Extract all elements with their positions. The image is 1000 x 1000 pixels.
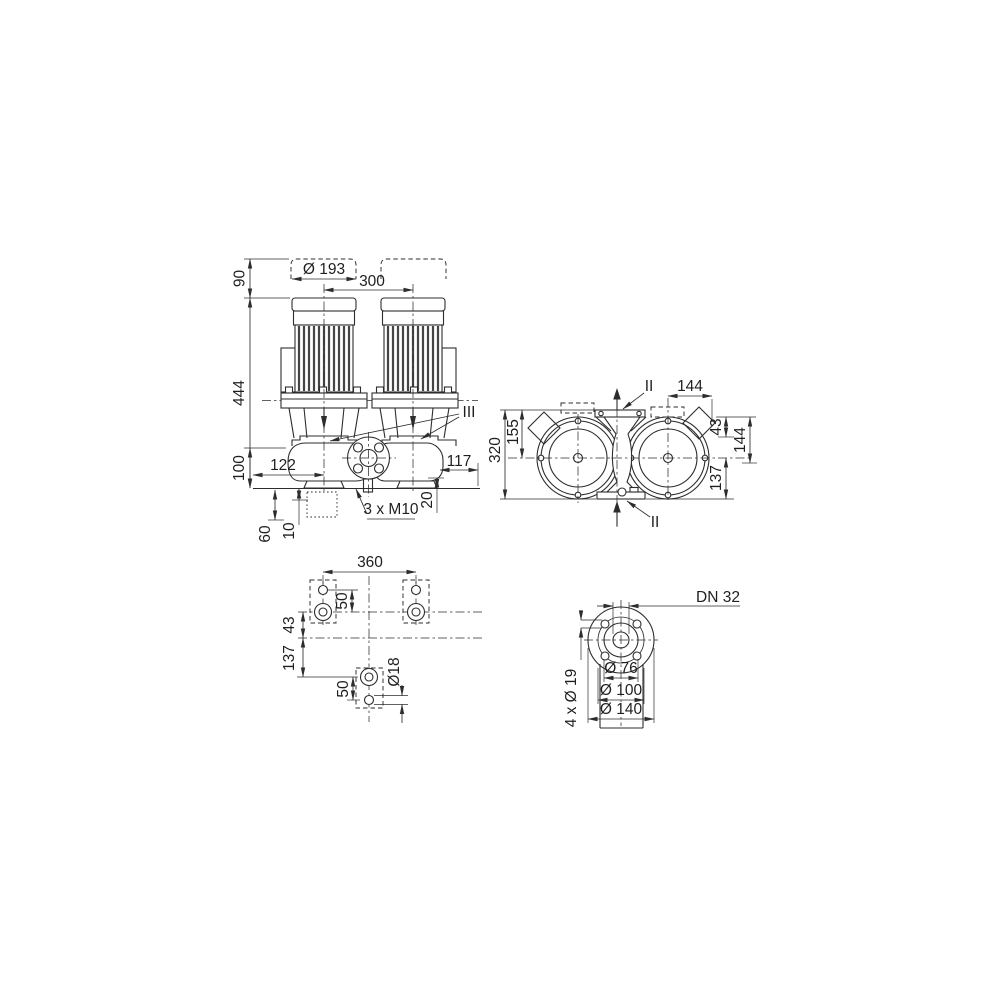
dim-d76: Ø 76 (604, 660, 638, 677)
dim-43-foundation: 43 (281, 616, 298, 633)
vent-screw (618, 488, 626, 496)
dim-444: 444 (231, 380, 248, 406)
dim-122: 122 (270, 457, 296, 474)
dim-137: 137 (708, 465, 725, 491)
flange-view: DN 32 Ø 76 Ø 100 Ø 140 4 x Ø 19 (563, 589, 740, 728)
motor-removal-space-right (381, 259, 446, 279)
dim-d100: Ø 100 (600, 682, 643, 699)
dim-20: 20 (419, 491, 436, 509)
dim-300: 300 (359, 273, 385, 290)
dim-100: 100 (231, 455, 248, 481)
terminal-box-alt-left (561, 403, 594, 413)
lantern-right (380, 408, 456, 446)
dim-144-top: 144 (677, 378, 703, 395)
dim-43: 43 (708, 418, 725, 435)
label-DN32: DN 32 (696, 589, 740, 606)
dim-10: 10 (281, 522, 298, 540)
label-4xd19: 4 x Ø 19 (563, 669, 580, 728)
pump-foot-right (397, 481, 437, 488)
dim-60: 60 (257, 525, 274, 543)
dim-d140: Ø 140 (600, 701, 643, 718)
foundation-dimensions: 360 50 43 137 50 Ø18 (281, 554, 416, 723)
label-II-top: II (645, 378, 654, 395)
motor-flange-plate (372, 393, 458, 408)
dim-d18: Ø18 (386, 657, 403, 686)
anchor-hole (412, 586, 421, 595)
dim-144-right: 144 (732, 427, 749, 453)
terminal-box-right (442, 348, 456, 392)
anchor-bolt (361, 669, 378, 686)
dim-90: 90 (232, 270, 249, 288)
plan-view: 320 155 144 43 137 144 II II (487, 378, 757, 531)
dim-155: 155 (505, 419, 522, 445)
label-II-bottom: II (651, 514, 660, 531)
anchor-hole (365, 696, 374, 705)
flange-bolt (354, 387, 361, 393)
pump-dimension-drawing: 90 444 100 Ø 193 300 122 117 60 10 20 3 … (0, 0, 1000, 1000)
dim-137-foundation: 137 (281, 645, 298, 671)
lantern-left (289, 408, 366, 446)
suction-flange-top (595, 410, 645, 417)
motor-right (372, 298, 458, 408)
foundation-block-dotted (307, 492, 337, 517)
anchor-bolt (315, 604, 332, 621)
dim-360: 360 (357, 554, 383, 571)
dim-117: 117 (447, 453, 472, 470)
dim-320: 320 (487, 437, 504, 463)
anchor-bolt (408, 604, 425, 621)
dim-50-top: 50 (334, 592, 351, 610)
flange-bolt (286, 387, 293, 393)
dim-diameter-193: Ø 193 (303, 261, 345, 278)
dim-50-bottom: 50 (335, 680, 352, 698)
front-view: 90 444 100 Ø 193 300 122 117 60 10 20 3 … (231, 259, 480, 543)
technical-drawing: 90 444 100 Ø 193 300 122 117 60 10 20 3 … (0, 0, 1000, 1000)
label-III: III (463, 404, 476, 421)
flange-bolt (320, 387, 327, 393)
flange-bolt (411, 387, 418, 393)
flange-dimensions: DN 32 Ø 76 Ø 100 Ø 140 4 x Ø 19 (563, 589, 740, 727)
terminal-box-left (281, 348, 295, 392)
drain-stub (364, 479, 373, 492)
foundation-view: 360 50 43 137 50 Ø18 (281, 554, 482, 723)
label-3xM10: 3 x M10 (363, 501, 419, 518)
air-vent (630, 488, 638, 493)
flange-bolt (377, 387, 384, 393)
terminal-box-alt-right (651, 407, 684, 417)
anchor-hole (319, 586, 328, 595)
flange-bolt (445, 387, 452, 393)
